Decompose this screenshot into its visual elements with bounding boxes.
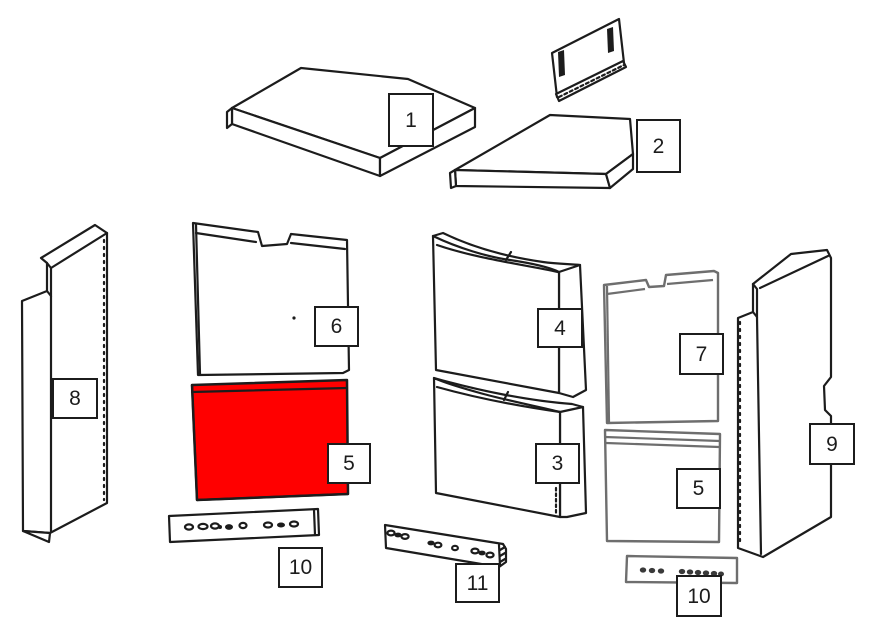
part-label-2-text: 2: [653, 136, 665, 157]
part-air-strip-middle: [385, 525, 506, 567]
part-label-5-left: 5: [327, 443, 371, 484]
part-air-strip-left: [169, 509, 319, 542]
part-label-5-right-text: 5: [693, 478, 705, 499]
part-label-4-text: 4: [554, 318, 566, 339]
part-label-6: 6: [314, 306, 359, 347]
part-label-7-text: 7: [696, 344, 708, 365]
part-top-plate-right: [450, 115, 633, 188]
part-label-10-right-text: 10: [687, 586, 710, 607]
part-label-7: 7: [679, 333, 724, 375]
part-label-8-text: 8: [69, 388, 81, 409]
part-back-panel-upper-left: [193, 223, 349, 375]
part-back-panel-lower-left-highlighted: [192, 380, 348, 500]
part-label-5-left-text: 5: [343, 453, 355, 474]
part-label-9: 9: [809, 423, 855, 465]
part-label-9-text: 9: [826, 434, 838, 455]
part-label-5-right: 5: [676, 468, 721, 509]
part-label-11: 11: [455, 563, 500, 603]
part-top-plate: [227, 68, 475, 176]
exploded-parts-diagram: 1 2 6 5 4 3 7 5 8 9 10 11 10: [0, 0, 872, 627]
diagram-canvas: [0, 0, 872, 627]
part-label-10-right: 10: [676, 575, 722, 617]
part-label-10-left-text: 10: [289, 557, 312, 578]
part-label-10-left: 10: [278, 547, 323, 588]
part-label-6-text: 6: [331, 316, 343, 337]
part-label-3-text: 3: [552, 453, 564, 474]
part-label-1: 1: [388, 93, 434, 147]
part-label-2: 2: [636, 119, 681, 173]
part-label-11-text: 11: [467, 573, 489, 594]
part-retainer-bracket: [552, 19, 626, 101]
part-label-8: 8: [52, 378, 98, 419]
part-side-panel-right: [738, 250, 831, 557]
part-label-1-text: 1: [405, 110, 417, 131]
part-label-4: 4: [537, 308, 583, 348]
part-label-3: 3: [535, 443, 580, 484]
